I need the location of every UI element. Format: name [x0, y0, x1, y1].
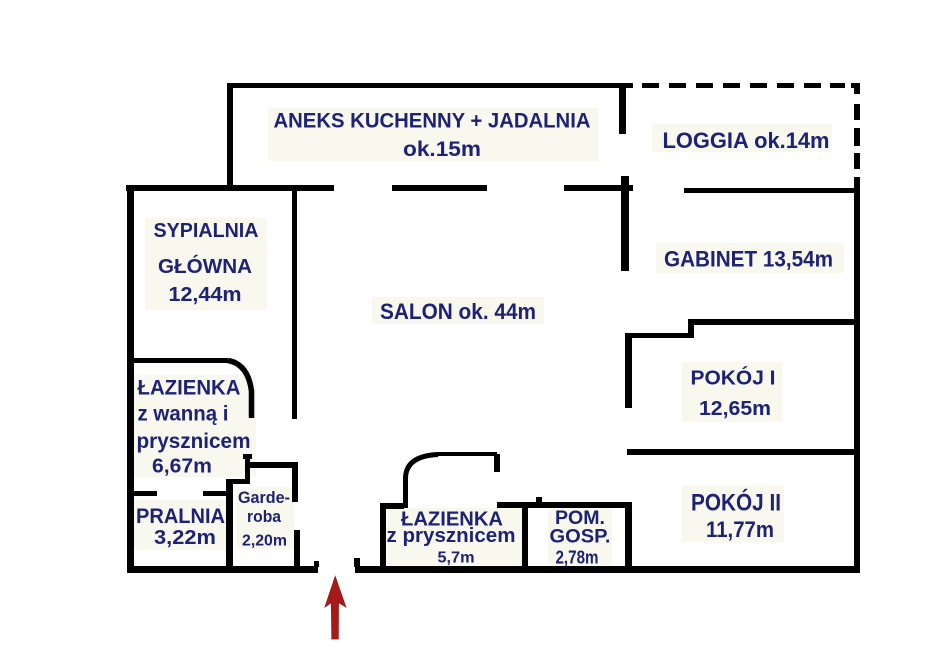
- svg-text:6,67m: 6,67m: [152, 456, 212, 478]
- svg-text:prysznicem: prysznicem: [137, 430, 251, 453]
- svg-text:3,22m: 3,22m: [154, 526, 216, 549]
- svg-text:z prysznicem: z prysznicem: [387, 525, 516, 547]
- svg-text:GABINET 13,54m: GABINET 13,54m: [664, 247, 833, 272]
- svg-text:z wanną i: z wanną i: [138, 403, 229, 426]
- svg-text:SALON ok. 44m: SALON ok. 44m: [380, 299, 536, 324]
- svg-text:GOSP.: GOSP.: [550, 527, 611, 548]
- svg-text:12,65m: 12,65m: [699, 397, 771, 420]
- svg-text:5,7m: 5,7m: [438, 550, 475, 567]
- svg-text:PRALNIA: PRALNIA: [136, 505, 225, 528]
- svg-text:roba: roba: [247, 507, 281, 526]
- svg-text:ŁAZIENKA: ŁAZIENKA: [138, 377, 241, 400]
- svg-text:Garde-: Garde-: [238, 488, 290, 507]
- svg-text:2,20m: 2,20m: [242, 533, 287, 550]
- svg-text:2,78m: 2,78m: [556, 548, 599, 568]
- svg-text:POKÓJ II: POKÓJ II: [691, 489, 781, 517]
- svg-text:LOGGIA ok.14m: LOGGIA ok.14m: [663, 128, 830, 153]
- svg-text:GŁÓWNA: GŁÓWNA: [158, 254, 252, 278]
- svg-text:12,44m: 12,44m: [169, 284, 242, 306]
- svg-text:POKÓJ I: POKÓJ I: [691, 366, 776, 390]
- svg-text:SYPIALNIA: SYPIALNIA: [154, 220, 259, 242]
- svg-text:ANEKS KUCHENNY + JADALNIA: ANEKS KUCHENNY + JADALNIA: [274, 110, 591, 133]
- svg-text:11,77m: 11,77m: [706, 517, 774, 542]
- svg-text:ok.15m: ok.15m: [403, 137, 481, 161]
